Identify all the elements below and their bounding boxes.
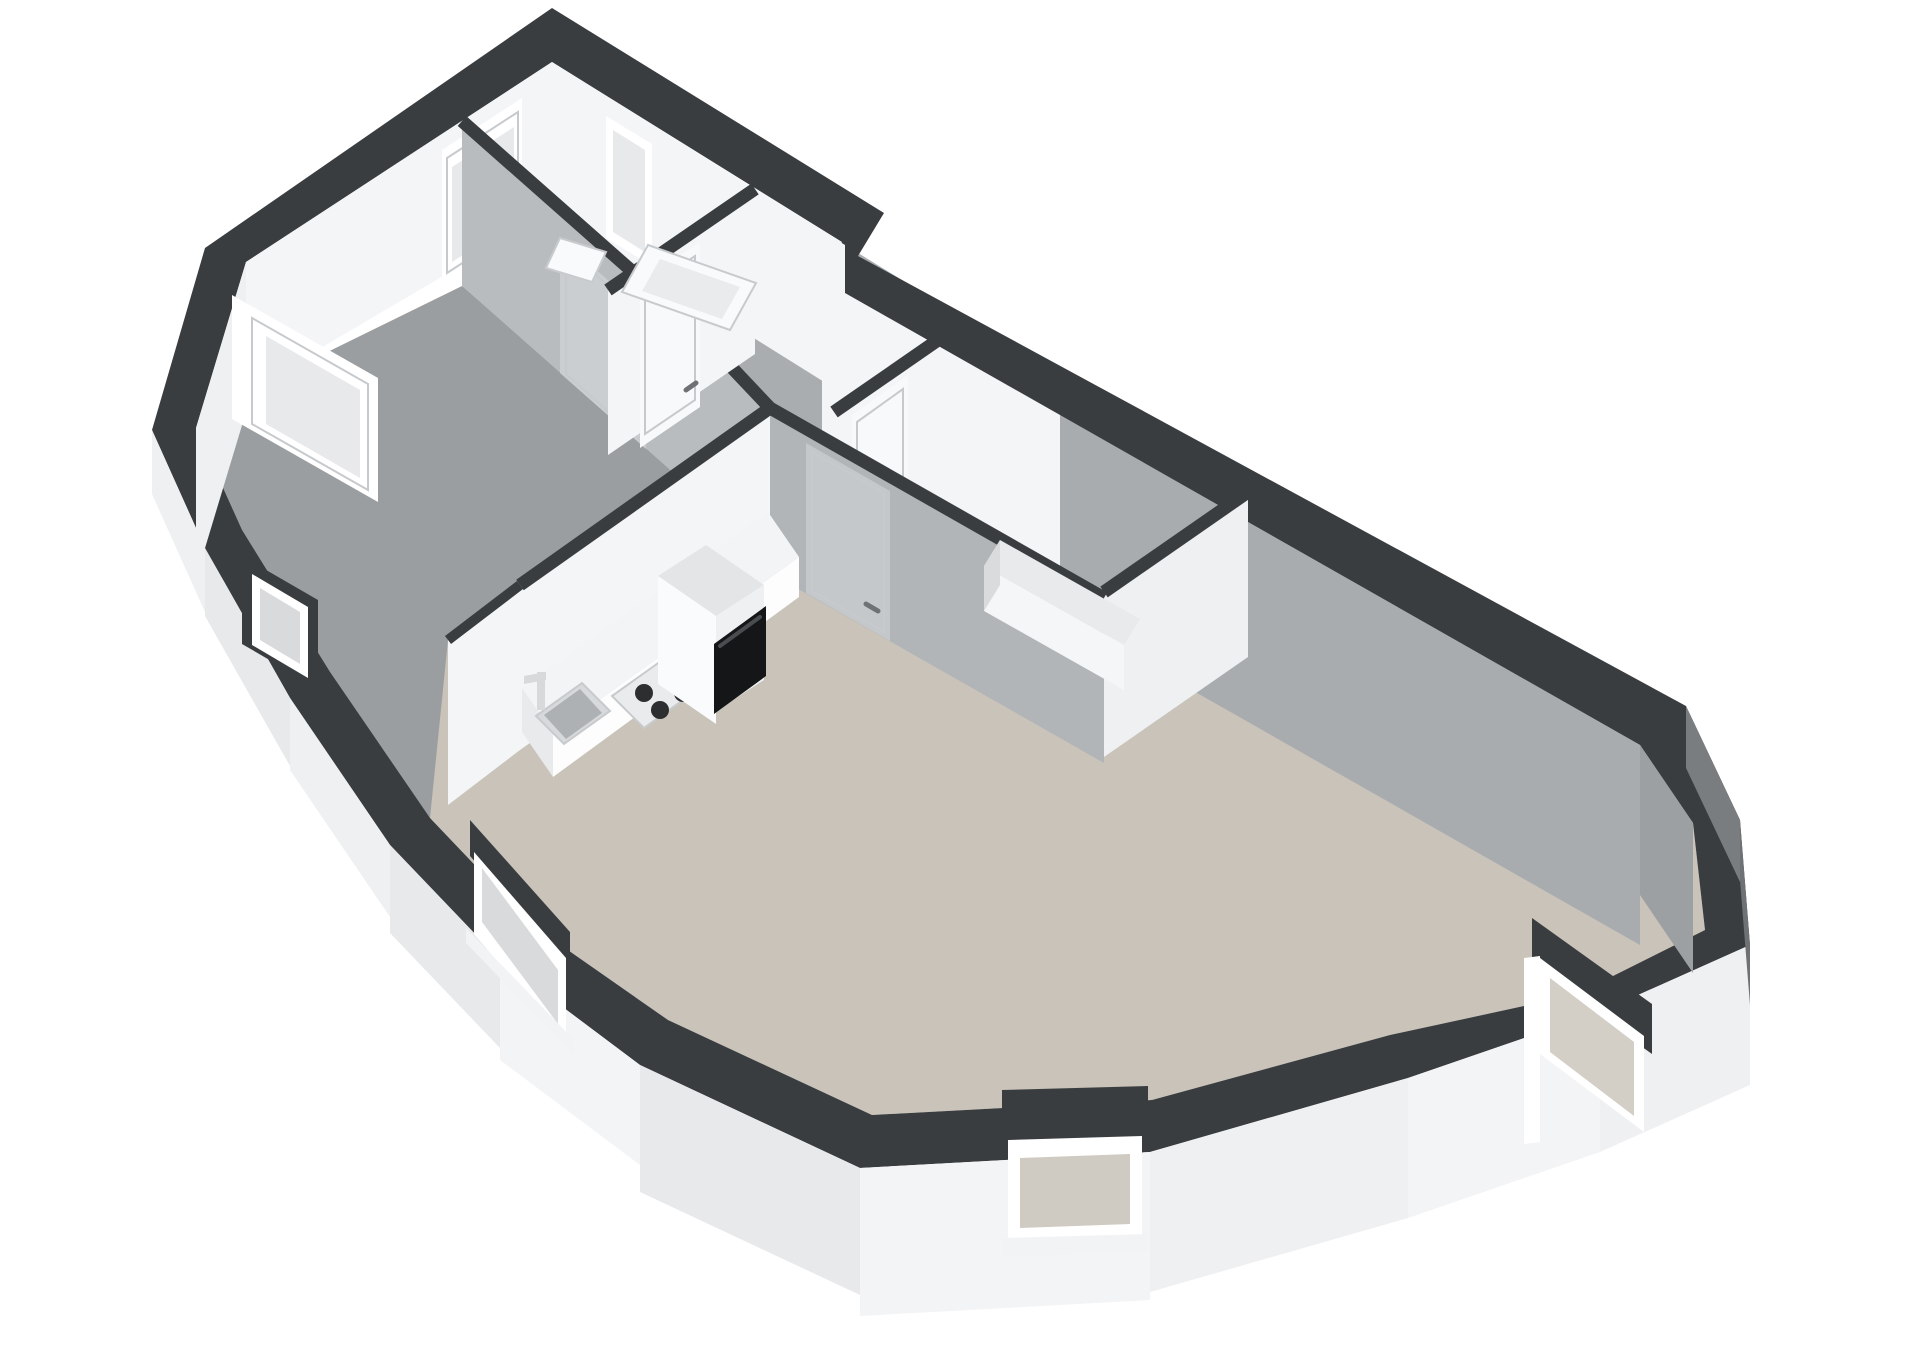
window-glass <box>1020 1154 1130 1228</box>
floorplan-svg <box>0 0 1920 1358</box>
floorplan-canvas <box>0 0 1920 1358</box>
window-glass <box>613 130 645 252</box>
hob-burner <box>635 684 653 702</box>
window-bottom <box>1002 1086 1148 1256</box>
hob-burner <box>651 701 669 719</box>
window-jamb <box>1524 956 1540 1144</box>
